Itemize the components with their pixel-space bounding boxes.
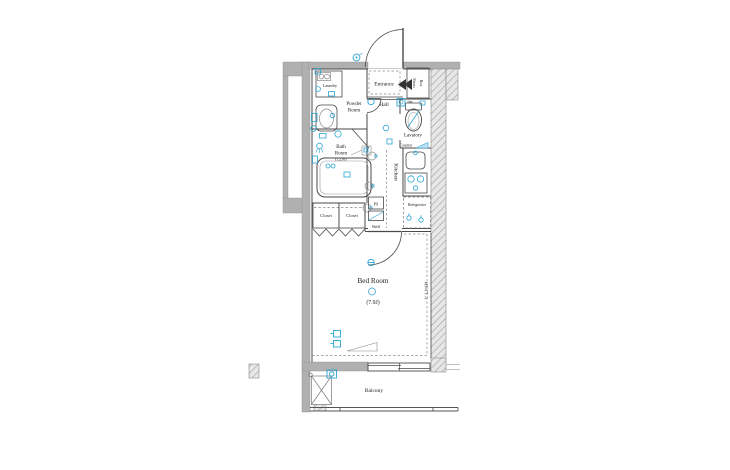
neighbor-window-line — [446, 365, 460, 370]
drain-icon — [344, 172, 350, 177]
closet-label: Closet — [320, 213, 332, 218]
entrance-door-swing — [366, 28, 404, 68]
shoes-box-label: Shoes — [412, 78, 417, 88]
outlet-icon — [407, 213, 423, 222]
floor-plan-canvas: Entrance Shoes Box Hall Laundry Powder R… — [0, 0, 730, 470]
doorbell-icon — [353, 53, 362, 61]
counter-icon — [416, 143, 428, 149]
closet-label: Closet — [346, 213, 358, 218]
kitchen-label: Kitchen — [393, 163, 399, 181]
outlet-icon — [331, 331, 341, 348]
bath-room-label: Bath — [336, 145, 346, 150]
kitchen-area: Kitchen Refrigerator — [383, 125, 430, 228]
storage-area: Closet Closet PS Shelf — [313, 197, 384, 236]
vent-icon — [335, 131, 341, 137]
floor-plan-drawing: Entrance Shoes Box Hall Laundry Powder R… — [0, 0, 730, 470]
balcony-label: Balcony — [365, 388, 384, 394]
lavatory-area: Sink Lavatory Counter — [397, 99, 428, 149]
switch-icon — [387, 139, 392, 144]
ceiling-light-icon — [369, 288, 376, 295]
folding-door-icon — [313, 229, 365, 236]
faucet-icon — [331, 164, 335, 168]
bathtub-icon — [317, 158, 371, 197]
powder-room-area: Powder Room — [311, 102, 362, 138]
shelf-label: Shelf — [372, 224, 381, 229]
powder-room-label: Powder — [346, 102, 362, 107]
shower-icon — [316, 143, 323, 153]
bed-room-size: (7.9J) — [366, 299, 379, 306]
switch-icon — [320, 134, 327, 139]
lavatory-label: Lavatory — [404, 134, 423, 139]
sink-label: Sink — [407, 101, 413, 104]
sliding-window — [368, 363, 430, 371]
laundry-label: Laundry — [323, 83, 338, 88]
laundry-area: Laundry — [315, 69, 342, 98]
switch-icon — [383, 125, 389, 131]
switch-icon — [329, 92, 335, 97]
counter-label: Counter — [400, 143, 414, 148]
control-icon — [313, 156, 318, 163]
bed-room-label: Bed Room — [358, 277, 389, 285]
faucet-icon — [326, 164, 330, 168]
powder-room-label: Room — [348, 109, 360, 114]
refrigerator-space — [404, 197, 431, 228]
bed-room-area: Bed Room (7.9J) — [331, 232, 402, 352]
railing — [310, 408, 458, 412]
sill-mark — [347, 343, 377, 352]
bath-door — [352, 129, 369, 148]
ps-label: PS — [374, 202, 379, 207]
shoes-box-label: Box — [419, 80, 424, 87]
bath-room-area: Bath Room (1216) — [313, 129, 372, 197]
refrigerator-label: Refrigerator — [408, 203, 427, 207]
ac-wall-note: エアコン — [419, 281, 428, 309]
entrance-label: Entrance — [374, 82, 394, 88]
